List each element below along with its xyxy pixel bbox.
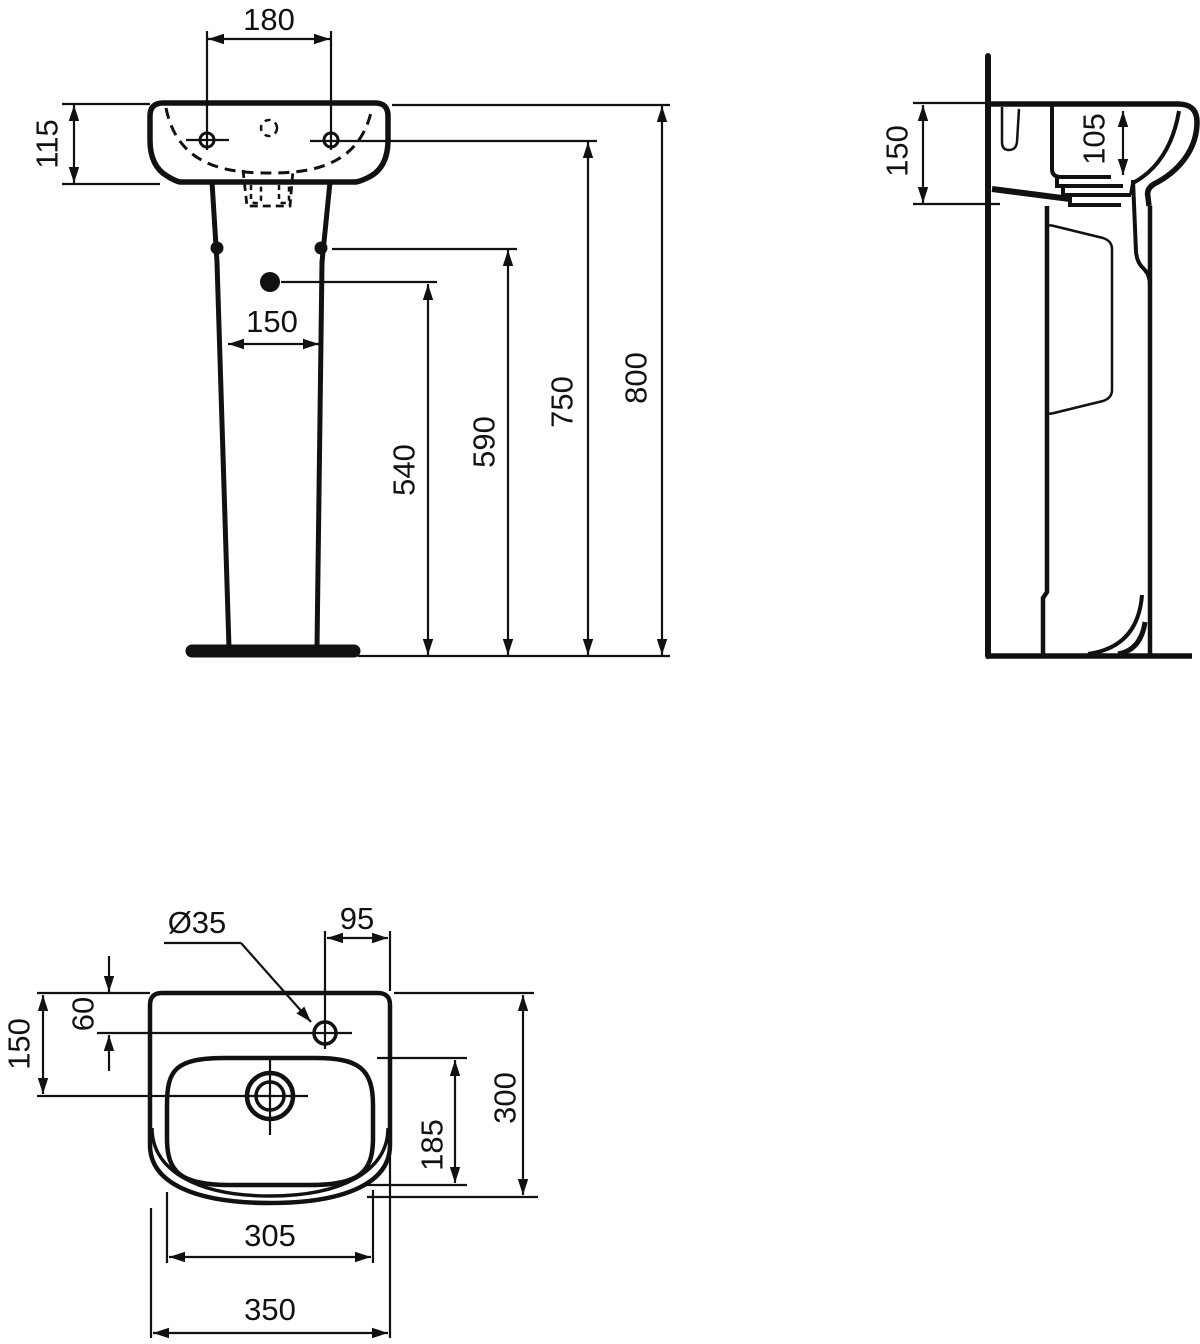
- dim-label-rim-height: 115: [30, 119, 65, 168]
- dim-label-540: 540: [387, 444, 422, 496]
- wall-fixing-pocket: [1002, 107, 1019, 150]
- dim-label-hole-spacing: 180: [243, 2, 295, 37]
- dim-label-150-plan: 150: [2, 1018, 37, 1070]
- drawing-sheet: 180 115 150 540 590 750: [0, 0, 1200, 1344]
- dim-hole-spacing: 180: [208, 2, 330, 39]
- dim-tap-hole-dia: Ø35: [164, 905, 311, 1022]
- dim-tap-offset-right: 95: [327, 901, 388, 938]
- dim-rim-height: 115: [30, 105, 75, 183]
- dim-label-bowl-depth: 105: [1077, 113, 1112, 165]
- dim-overall-width: 350: [153, 1292, 388, 1333]
- plan-view: Ø35 95 60 150 300 185: [2, 901, 539, 1338]
- drain-outlet-point: [260, 272, 280, 292]
- side-view: 150 105: [880, 56, 1198, 656]
- dim-rim-depth: 150: [880, 105, 924, 203]
- dim-height-800: 800: [619, 106, 663, 655]
- pedestal-back-edge: [1043, 206, 1047, 654]
- dim-label-305: 305: [244, 1218, 296, 1253]
- pedestal-inner-panel: [1046, 225, 1112, 413]
- dim-label-95: 95: [340, 901, 374, 936]
- dim-label-300: 300: [488, 1072, 523, 1124]
- dim-pedestal-width: 150: [228, 304, 319, 344]
- dim-tap-offset-back: 60: [66, 956, 110, 1071]
- dim-drain-offset-back: 150: [2, 995, 44, 1094]
- pedestal-fixing-point-left: [211, 242, 224, 255]
- dim-label-590: 590: [467, 416, 502, 468]
- pedestal-fixing-point-right: [315, 242, 328, 255]
- dim-bowl-depth: 105: [1077, 111, 1124, 175]
- front-view: 180 115 150 540 590 750: [30, 2, 671, 656]
- dim-label-750: 750: [545, 376, 580, 428]
- leader-arrow: [241, 943, 311, 1022]
- dim-label-350: 350: [244, 1292, 296, 1327]
- dim-label-rim-depth: 150: [880, 125, 915, 177]
- front-basin: [150, 103, 388, 206]
- basin-underside: [992, 189, 1070, 199]
- dim-bowl-width: 305: [169, 1218, 371, 1257]
- siphon-slot-left: [251, 185, 261, 203]
- dim-label-60: 60: [66, 997, 101, 1031]
- dim-label-800: 800: [619, 352, 654, 404]
- dim-height-590: 590: [467, 250, 509, 655]
- dim-height-750: 750: [545, 142, 589, 655]
- dim-bowl-depth-plan: 185: [415, 1060, 456, 1183]
- dim-label-pedestal-width: 150: [246, 304, 298, 339]
- overflow-hole: [261, 120, 277, 136]
- dim-overall-depth: 300: [488, 995, 524, 1195]
- basin-outline: [150, 103, 388, 182]
- basin-underside-step: [1070, 196, 1121, 205]
- dim-height-540: 540: [387, 284, 429, 655]
- technical-drawing-canvas: 180 115 150 540 590 750: [0, 0, 1200, 1344]
- dim-label-tap-dia: Ø35: [168, 905, 227, 940]
- front-dimensions: 180 115 150 540 590 750: [30, 2, 663, 655]
- dim-label-185: 185: [415, 1119, 450, 1171]
- front-pedestal: [192, 182, 670, 656]
- siphon-slot-right: [279, 185, 289, 203]
